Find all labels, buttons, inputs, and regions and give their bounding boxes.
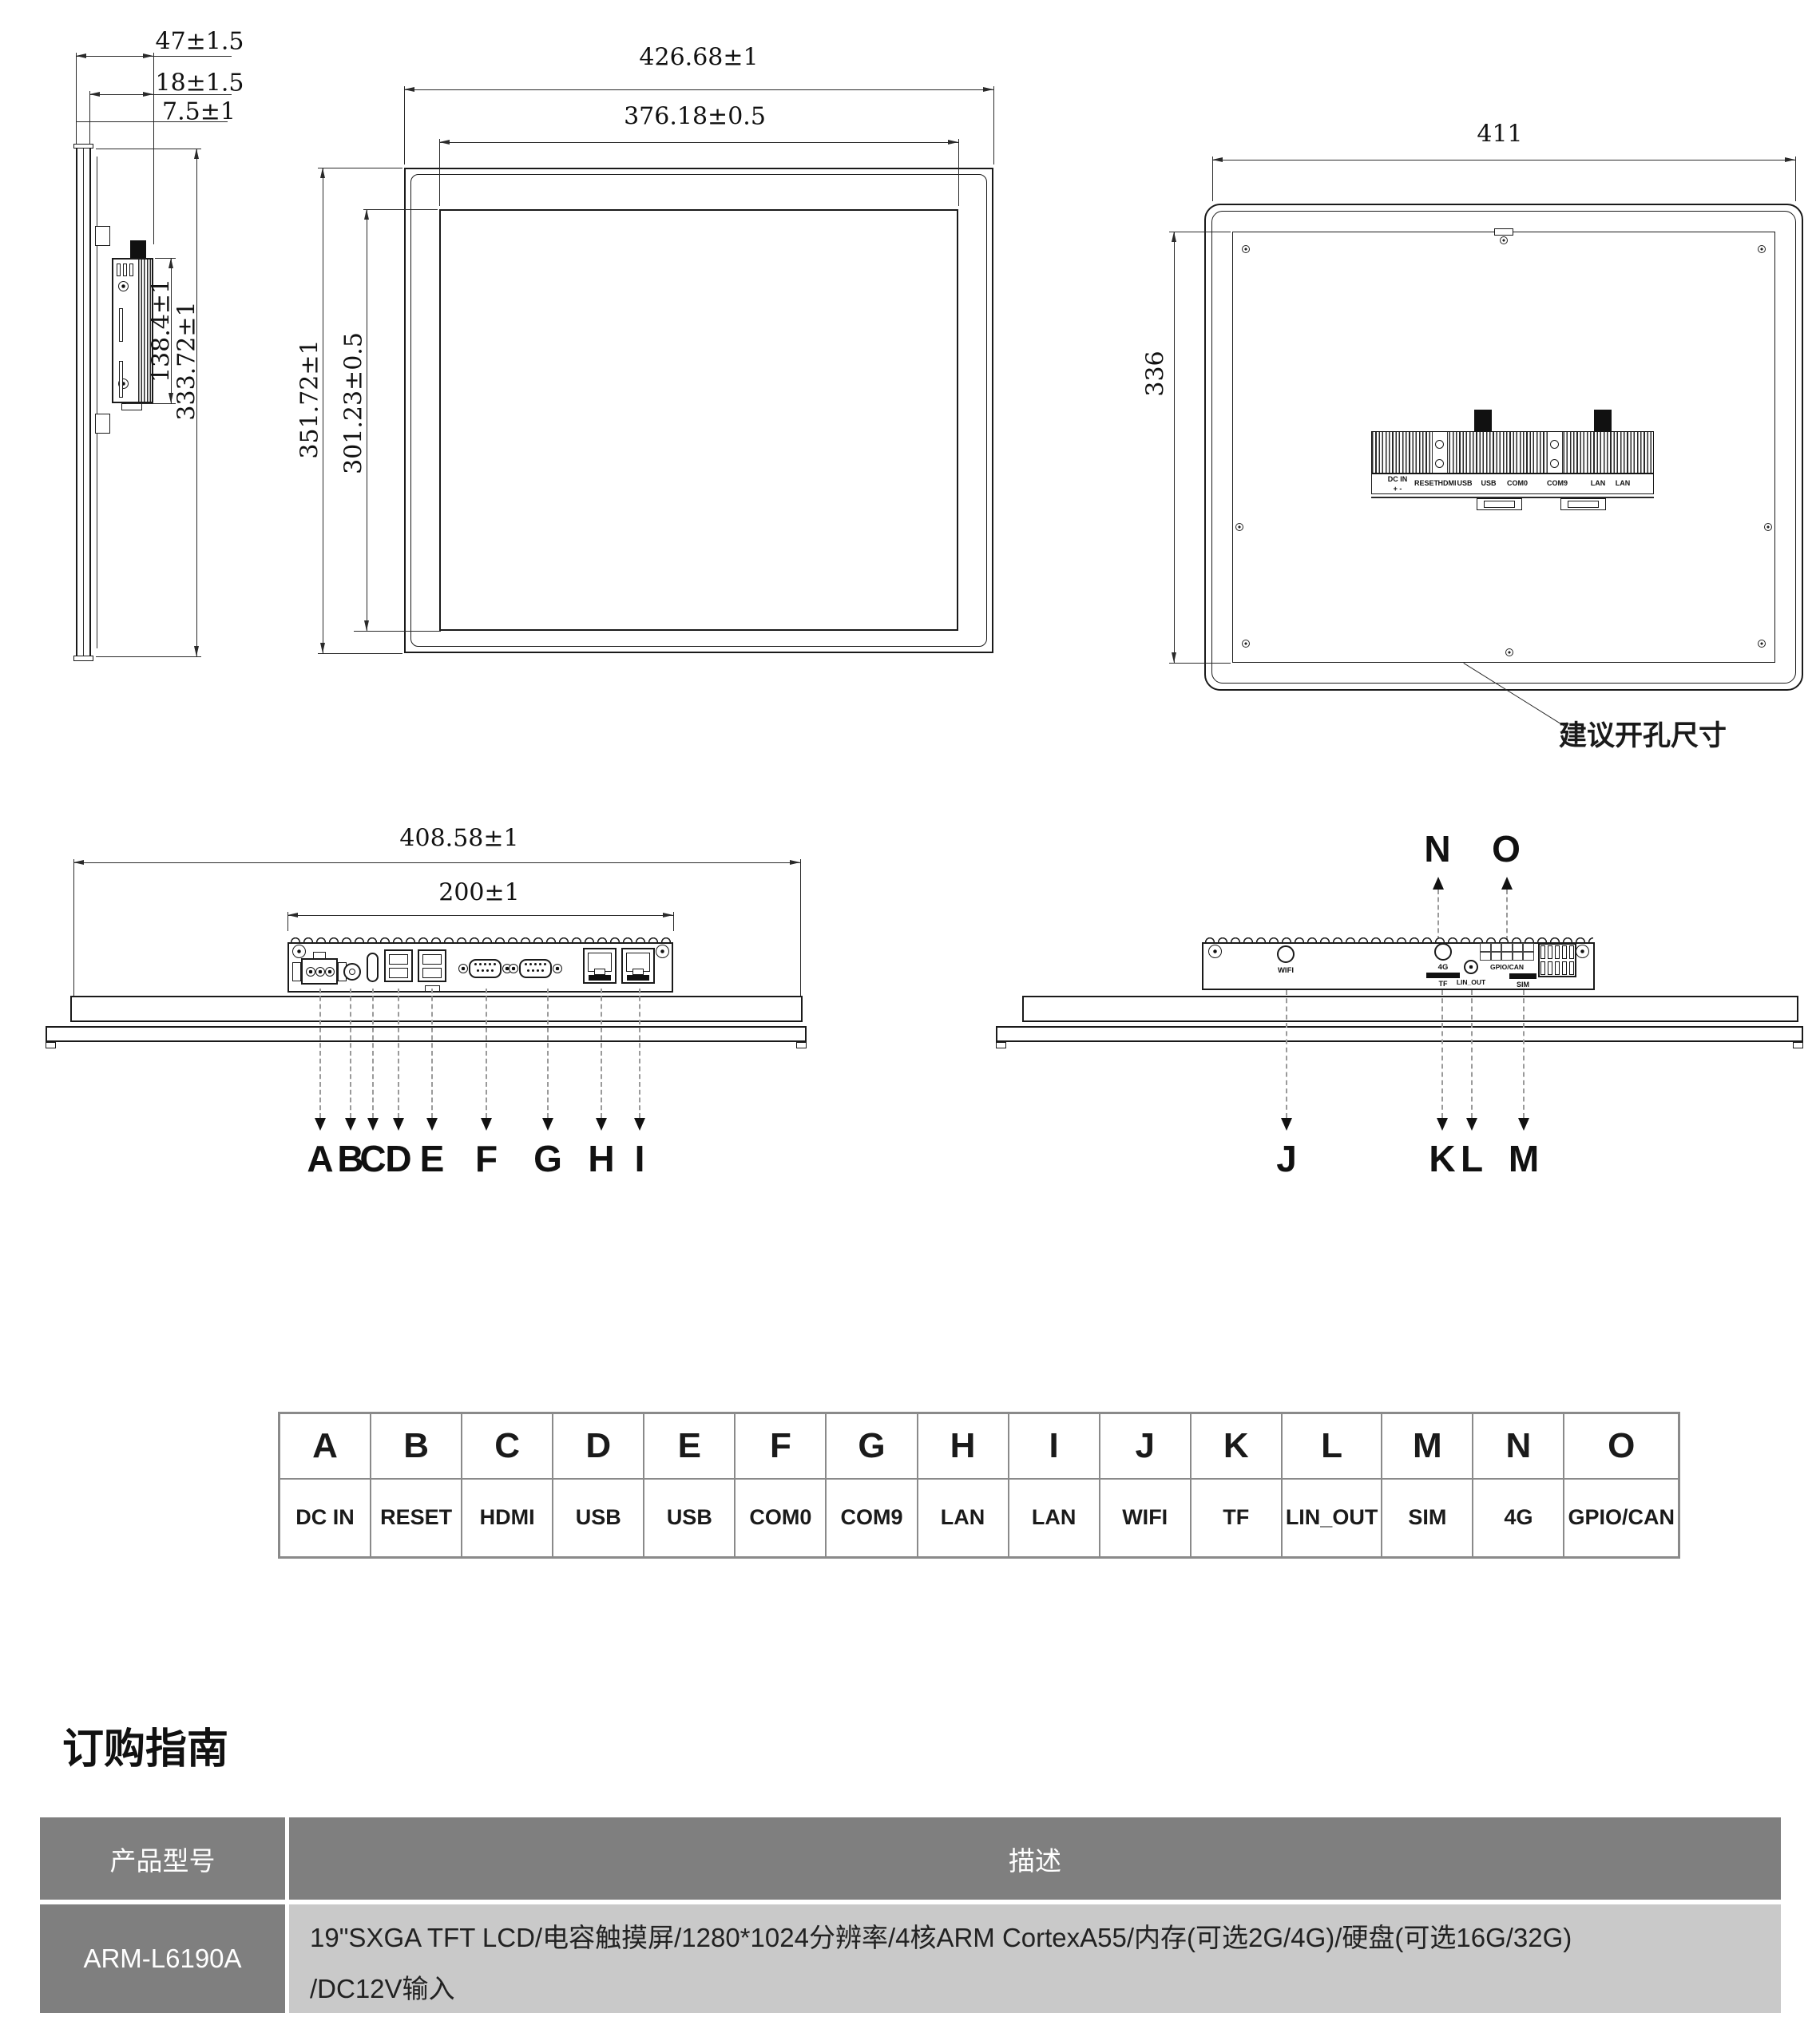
description-line1: 19"SXGA TFT LCD/电容触摸屏/1280*1024分辨率/4核ARM… <box>310 1912 1572 1964</box>
order-guide-heading: 订购指南 <box>62 1715 228 1775</box>
model-value-cell: ARM-L6190A <box>40 1904 285 2013</box>
model-header-cell: 产品型号 <box>40 1817 285 1900</box>
desc-value-cell: 19"SXGA TFT LCD/电容触摸屏/1280*1024分辨率/4核ARM… <box>289 1904 1781 2013</box>
description-line2: /DC12V输入 <box>310 1964 455 2015</box>
order-guide: 订购指南 产品型号 描述 ARM-L6190A 19"SXGA TFT LCD/… <box>0 0 1820 2021</box>
desc-header-cell: 描述 <box>289 1817 1781 1900</box>
datasheet-page: 47±1.5 18±1.5 7.5±1 138.4±1 <box>0 0 1820 2021</box>
